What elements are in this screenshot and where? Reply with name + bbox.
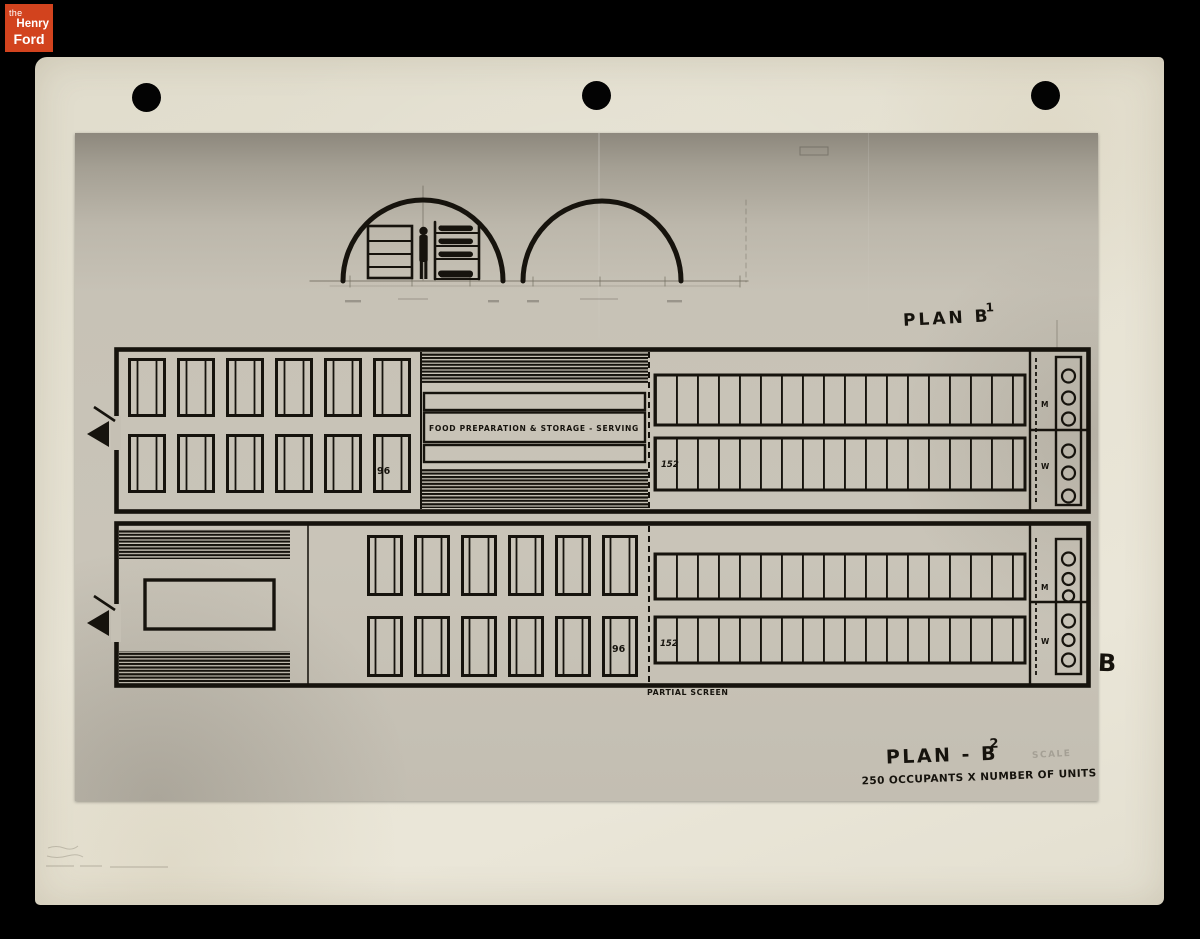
dormitory-band <box>655 617 1025 663</box>
faint-mark <box>800 147 828 155</box>
hatched-zone <box>119 651 290 682</box>
plan-b1-title-sup: 1 <box>985 300 994 314</box>
washroom-circles <box>1062 553 1075 667</box>
women-label: W <box>1041 462 1050 471</box>
washroom-circles <box>1062 370 1075 503</box>
sheet-letter: B <box>1097 649 1116 678</box>
dormitory-band <box>655 438 1025 490</box>
architectural-drawing: PLAN B 1 96 FOOD PREPARATION & ST <box>0 0 1200 939</box>
quonset-arch-right <box>523 201 681 281</box>
men-label: M <box>1041 400 1048 409</box>
hatched-zone <box>119 529 290 559</box>
capacity-label: 96 <box>612 644 626 655</box>
elevation-drawing <box>310 186 748 302</box>
service-room <box>145 580 274 629</box>
bunk-grid <box>128 434 411 494</box>
dormitory-band <box>655 375 1025 425</box>
plan-b1-drawing: 96 FOOD PREPARATION & STORAGE - SERVING … <box>87 349 1089 512</box>
capacity-label: 152 <box>661 460 679 470</box>
women-label: W <box>1041 637 1050 646</box>
dimension-marks <box>345 298 682 302</box>
capacity-label: 152 <box>660 639 678 649</box>
hatched-zone <box>422 469 648 508</box>
bunk-rack <box>435 222 479 279</box>
scale-note: SCALE <box>1032 749 1072 761</box>
bunk-grid <box>367 616 638 677</box>
plan-b2-title-sup: 2 <box>989 737 999 752</box>
men-label: M <box>1041 583 1048 592</box>
capacity-label: 96 <box>377 466 391 477</box>
entry-arrow <box>87 407 115 447</box>
screenshot-root: the Henry Ford <box>0 0 1200 939</box>
plan-b1-title: PLAN B <box>903 306 991 331</box>
bunk-grid <box>128 358 411 418</box>
plan-b2-subtitle: 250 OCCUPANTS X NUMBER OF UNITS <box>861 767 1096 787</box>
partial-screen-label: PARTIAL SCREEN <box>647 688 729 697</box>
plan-b2-drawing: 96 152 M W <box>87 523 1089 686</box>
plan-b2-title: PLAN - B <box>886 743 999 769</box>
entry-arrow <box>87 596 115 636</box>
entry-gap <box>111 416 121 450</box>
bunk-grid <box>367 535 638 598</box>
food-prep-label: FOOD PREPARATION & STORAGE - SERVING <box>429 424 639 433</box>
pencil-scribbles <box>46 846 168 867</box>
shelf-unit <box>368 226 412 278</box>
hatched-zone <box>422 352 648 383</box>
dormitory-band <box>655 554 1025 599</box>
